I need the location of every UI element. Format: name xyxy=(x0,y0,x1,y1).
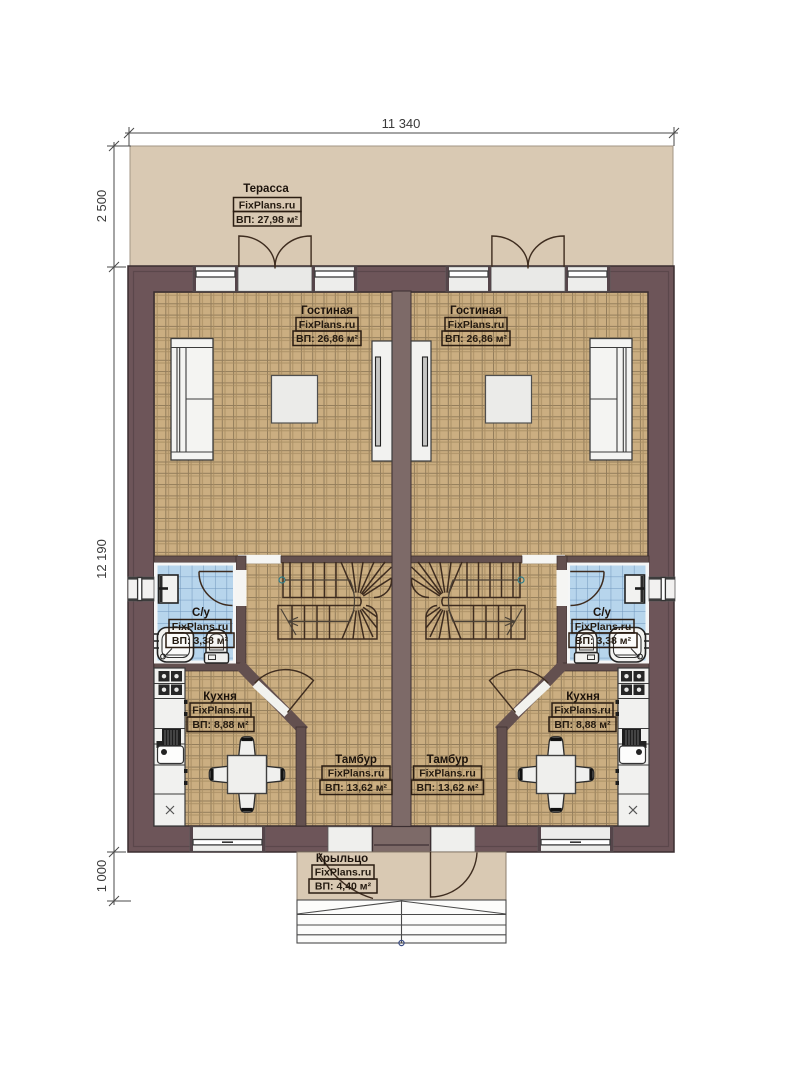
svg-text:Крыльцо: Крыльцо xyxy=(316,853,368,865)
svg-text:С/у: С/у xyxy=(593,607,612,619)
svg-text:Гостиная: Гостиная xyxy=(450,305,502,317)
svg-text:Кухня: Кухня xyxy=(203,691,237,703)
svg-text:Тамбур: Тамбур xyxy=(335,754,377,766)
svg-text:ВП: 13,62 м²: ВП: 13,62 м² xyxy=(416,782,479,794)
svg-text:Терасса: Терасса xyxy=(243,183,289,195)
svg-text:FixPlans.ru: FixPlans.ru xyxy=(192,705,249,717)
svg-text:ВП: 13,62 м²: ВП: 13,62 м² xyxy=(325,782,388,794)
svg-text:FixPlans.ru: FixPlans.ru xyxy=(575,621,632,633)
svg-text:ВП: 3,38 м²: ВП: 3,38 м² xyxy=(575,635,632,647)
svg-text:FixPlans.ru: FixPlans.ru xyxy=(172,621,229,633)
svg-text:ВП: 26,86 м²: ВП: 26,86 м² xyxy=(445,333,508,345)
svg-text:1 000: 1 000 xyxy=(94,860,109,893)
svg-text:Тамбур: Тамбур xyxy=(427,754,469,766)
svg-text:ВП: 26,86 м²: ВП: 26,86 м² xyxy=(296,333,359,345)
svg-text:FixPlans.ru: FixPlans.ru xyxy=(239,200,296,212)
svg-text:FixPlans.ru: FixPlans.ru xyxy=(299,319,356,331)
svg-text:FixPlans.ru: FixPlans.ru xyxy=(419,768,476,780)
svg-text:FixPlans.ru: FixPlans.ru xyxy=(315,867,372,879)
svg-text:2 500: 2 500 xyxy=(94,190,109,223)
svg-text:Кухня: Кухня xyxy=(566,691,600,703)
svg-text:FixPlans.ru: FixPlans.ru xyxy=(328,768,385,780)
svg-text:11 340: 11 340 xyxy=(382,116,421,131)
svg-text:ВП: 8,88 м²: ВП: 8,88 м² xyxy=(554,719,611,731)
svg-text:FixPlans.ru: FixPlans.ru xyxy=(448,319,505,331)
svg-text:Гостиная: Гостиная xyxy=(301,305,353,317)
svg-text:ВП: 3,38 м²: ВП: 3,38 м² xyxy=(172,635,229,647)
svg-text:ВП: 27,98 м²: ВП: 27,98 м² xyxy=(236,214,299,226)
svg-text:ВП: 8,88 м²: ВП: 8,88 м² xyxy=(192,719,249,731)
svg-text:ВП: 4,40 м²: ВП: 4,40 м² xyxy=(315,881,372,893)
svg-text:12 190: 12 190 xyxy=(94,539,109,579)
svg-text:FixPlans.ru: FixPlans.ru xyxy=(554,705,611,717)
svg-text:С/у: С/у xyxy=(192,607,211,619)
